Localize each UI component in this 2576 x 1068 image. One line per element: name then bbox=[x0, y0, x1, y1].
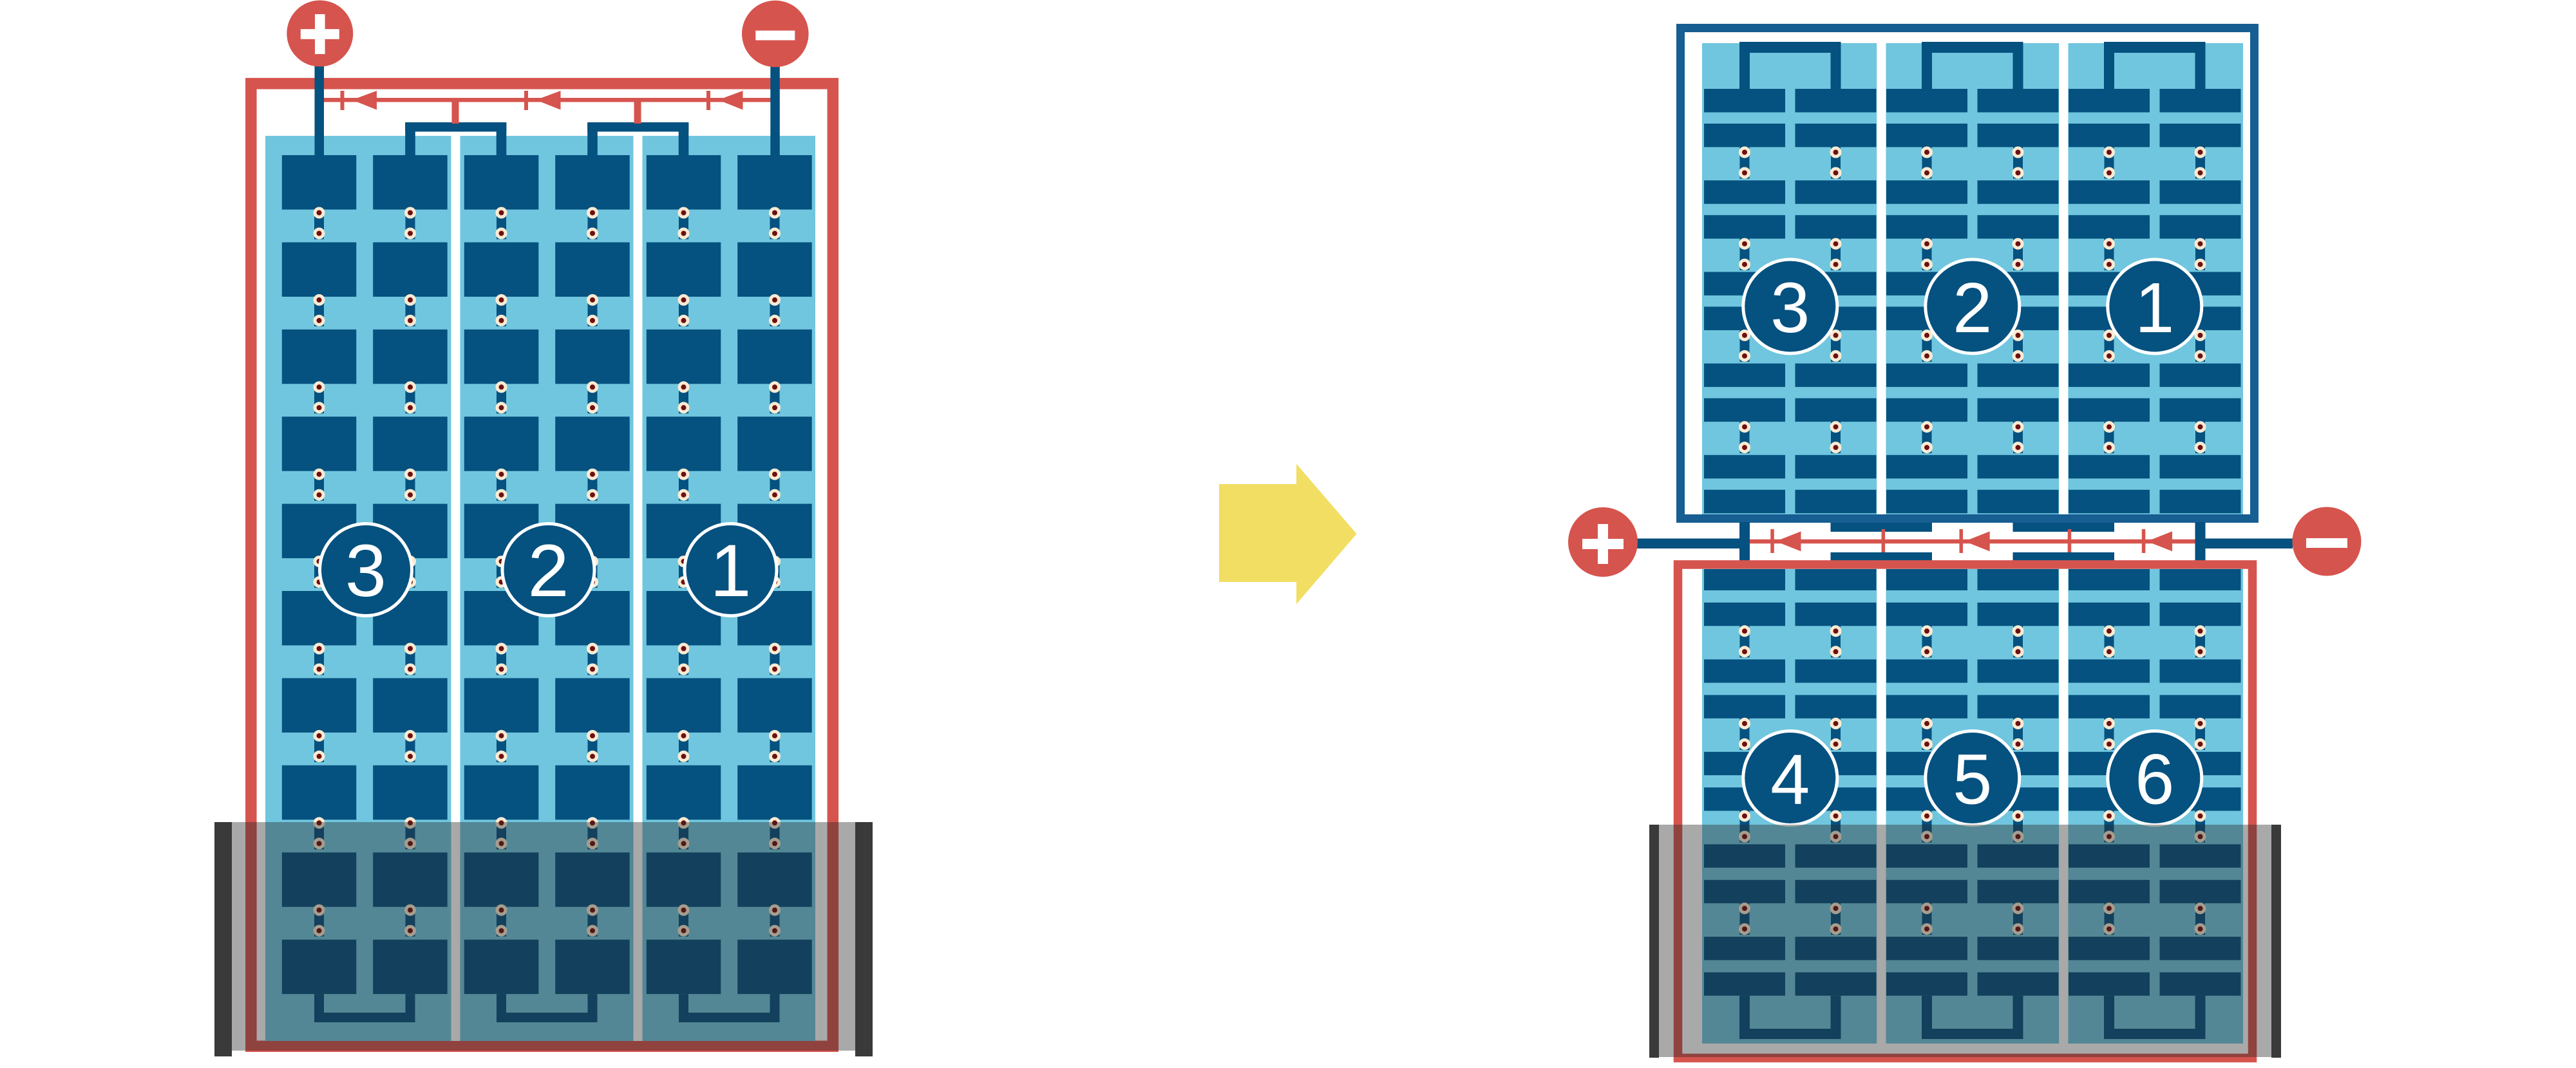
svg-text:3: 3 bbox=[345, 530, 386, 612]
svg-text:3: 3 bbox=[1770, 268, 1810, 348]
svg-text:4: 4 bbox=[1770, 740, 1810, 820]
svg-text:1: 1 bbox=[2135, 268, 2174, 348]
svg-text:5: 5 bbox=[1953, 740, 1992, 820]
svg-text:2: 2 bbox=[528, 530, 569, 612]
svg-text:1: 1 bbox=[710, 530, 752, 612]
svg-text:6: 6 bbox=[2135, 740, 2174, 820]
svg-text:2: 2 bbox=[1953, 268, 1992, 348]
